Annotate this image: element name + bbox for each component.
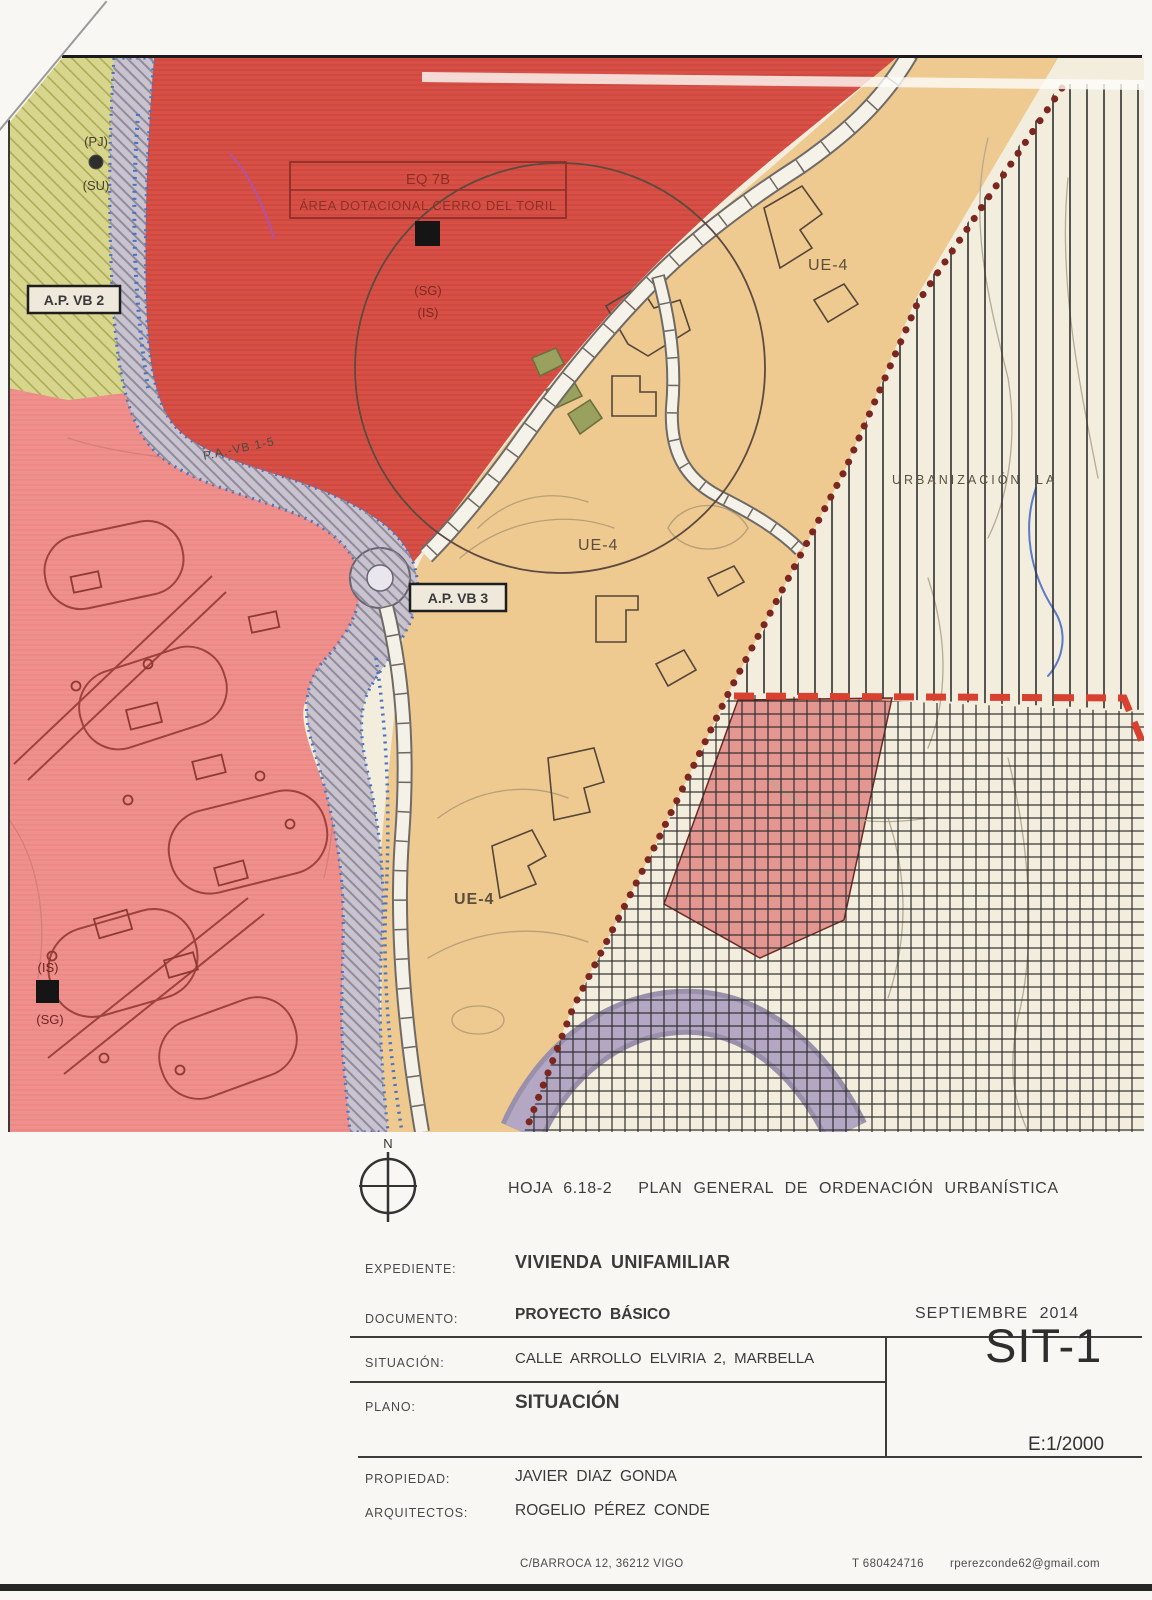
north-arrow: N xyxy=(350,1134,426,1229)
ap-vb-2-box: A.P. VB 2 xyxy=(28,286,120,313)
row-plano-label: PLANO: xyxy=(365,1400,416,1414)
rule-2 xyxy=(350,1381,887,1383)
sheet-code: SIT-1 xyxy=(985,1318,1102,1373)
ue4-label-center: UE-4 xyxy=(578,537,618,554)
sg-top-label: (SG) xyxy=(414,283,441,298)
eq-code: EQ 7B xyxy=(406,171,450,188)
scale: E:1/2000 xyxy=(1028,1434,1104,1456)
urbanizacion-label: URBANIZACIÓN xyxy=(892,472,1022,487)
is-bottom-label: (IS) xyxy=(38,960,59,975)
sheet-frame-left xyxy=(8,120,10,1132)
footer-email: rperezconde62@gmail.com xyxy=(950,1558,1100,1570)
ap-vb-3-box: A.P. VB 3 xyxy=(410,584,506,611)
is-top-label: (IS) xyxy=(418,305,439,320)
north-label: N xyxy=(383,1136,392,1151)
urbanizacion-la-label: LA xyxy=(1036,473,1057,487)
row-propiedad-label: PROPIEDAD: xyxy=(365,1472,450,1486)
situation-map: EQ 7B ÁREA DOTACIONAL CERRO DEL TORIL (S… xyxy=(8,58,1144,1132)
footer-phone: T 680424716 xyxy=(852,1558,924,1570)
rule-3 xyxy=(358,1456,1142,1458)
sg-bottom-label: (SG) xyxy=(36,1012,63,1027)
eq-area-name: ÁREA DOTACIONAL CERRO DEL TORIL xyxy=(299,198,556,213)
is-square-marker xyxy=(36,980,59,1003)
row-propiedad-value: JAVIER DIAZ GONDA xyxy=(515,1468,677,1486)
sheet-frame-top xyxy=(62,55,1142,58)
rule-vertical xyxy=(885,1336,887,1458)
row-arquitectos-value: ROGELIO PÉREZ CONDE xyxy=(515,1502,710,1520)
footer-address: C/BARROCA 12, 36212 VIGO xyxy=(520,1558,684,1570)
situation-map-canvas: EQ 7B ÁREA DOTACIONAL CERRO DEL TORIL (S… xyxy=(8,58,1144,1132)
ue4-label-south: UE-4 xyxy=(454,891,494,908)
svg-text:A.P. VB 3: A.P. VB 3 xyxy=(428,590,489,606)
pj-label: (PJ) xyxy=(84,134,108,149)
row-documento-value: PROYECTO BÁSICO xyxy=(515,1306,670,1324)
plan-title: PLAN GENERAL DE ORDENACIÓN URBANÍSTICA xyxy=(638,1180,1059,1197)
row-situacion-label: SITUACIÓN: xyxy=(365,1356,445,1370)
row-plano-value: SITUACIÓN xyxy=(515,1392,620,1414)
row-expediente-label: EXPEDIENTE: xyxy=(365,1262,456,1276)
row-documento-label: DOCUMENTO: xyxy=(365,1312,458,1326)
row-arquitectos-label: ARQUITECTOS: xyxy=(365,1506,468,1520)
sg-square-marker xyxy=(415,221,440,246)
scanned-plan-sheet: { "map": { "area_label_box": { "line1": … xyxy=(0,0,1152,1600)
sheet-ref: HOJA 6.18-2 xyxy=(508,1180,612,1197)
row-situacion-value: CALLE ARROLLO ELVIRIA 2, MARBELLA xyxy=(515,1350,814,1367)
row-expediente-value: VIVIENDA UNIFAMILIAR xyxy=(515,1252,730,1273)
sheet-header: HOJA 6.18-2PLAN GENERAL DE ORDENACIÓN UR… xyxy=(508,1180,1059,1198)
su-label: (SU) xyxy=(83,178,110,193)
ue4-label-ne: UE-4 xyxy=(808,257,848,274)
svg-text:A.P. VB 2: A.P. VB 2 xyxy=(44,292,105,308)
sheet-bottom-edge xyxy=(0,1584,1152,1591)
roundabout xyxy=(350,548,410,608)
